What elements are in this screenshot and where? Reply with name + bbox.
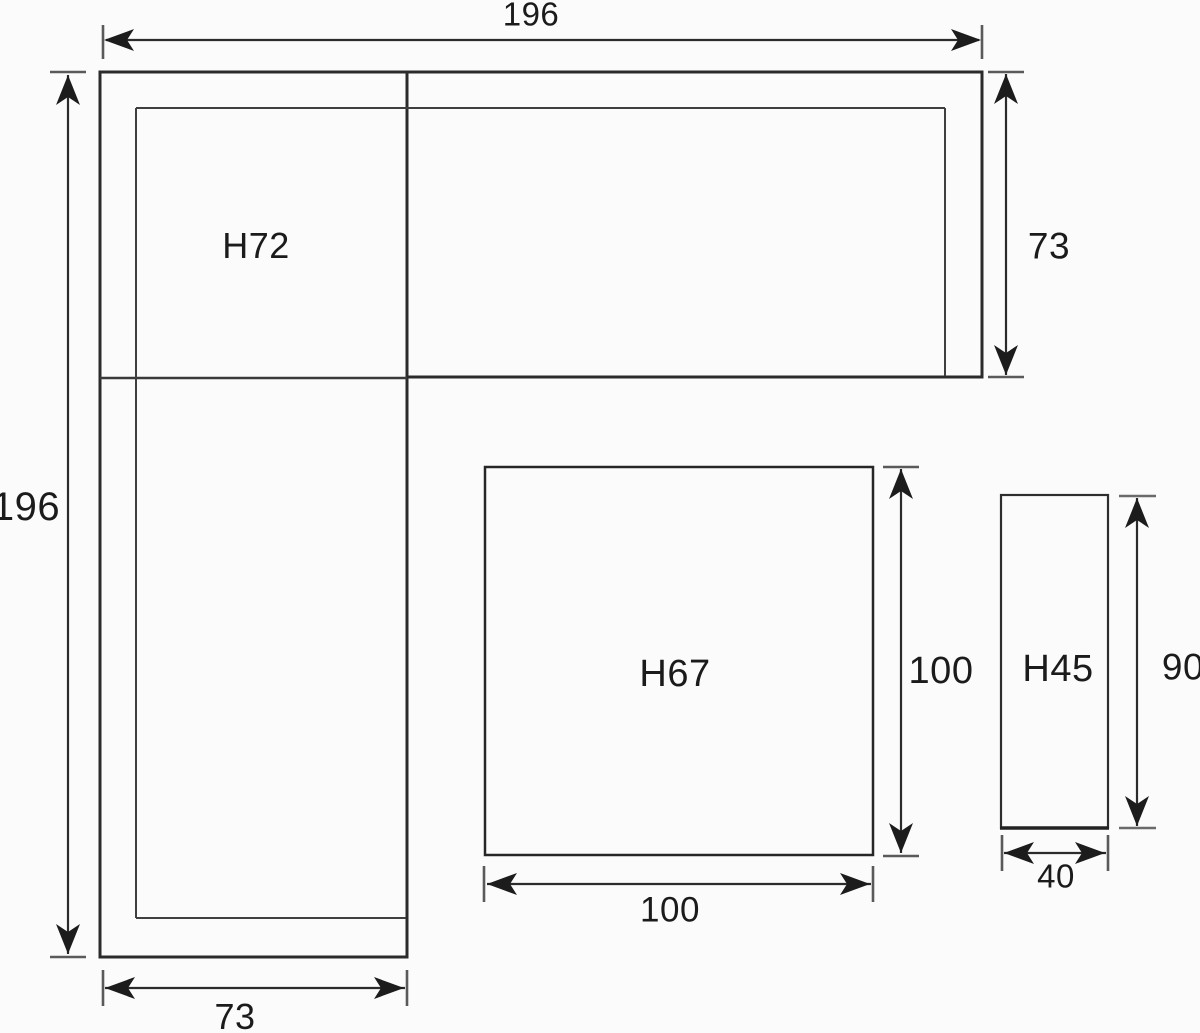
- dim-right-arm-depth: [988, 72, 1024, 377]
- dim-side-depth: [1119, 496, 1156, 828]
- dim-label-side-width: 40: [1037, 860, 1075, 893]
- dim-label-table-width: 100: [640, 893, 700, 928]
- piece-label-coffee-table: H67: [639, 655, 710, 693]
- sofa-outline: [100, 72, 982, 957]
- dim-label-total-depth: 196: [0, 487, 60, 527]
- sofa-outer-boundary: [100, 72, 982, 957]
- dim-label-side-depth: 90: [1162, 649, 1200, 686]
- piece-label-corner-sofa: H72: [222, 228, 290, 264]
- dim-label-left-arm-width: 73: [214, 999, 255, 1033]
- furniture-dimension-diagram: 196 196 73 73 H72 H67 100 100 H45 90 40: [0, 0, 1200, 1033]
- piece-label-side-table: H45: [1022, 650, 1093, 688]
- dim-label-total-width: 196: [503, 0, 560, 31]
- diagram-canvas: [0, 0, 1200, 1033]
- dim-label-right-arm-depth: 73: [1028, 228, 1070, 265]
- dim-label-table-depth: 100: [909, 652, 974, 690]
